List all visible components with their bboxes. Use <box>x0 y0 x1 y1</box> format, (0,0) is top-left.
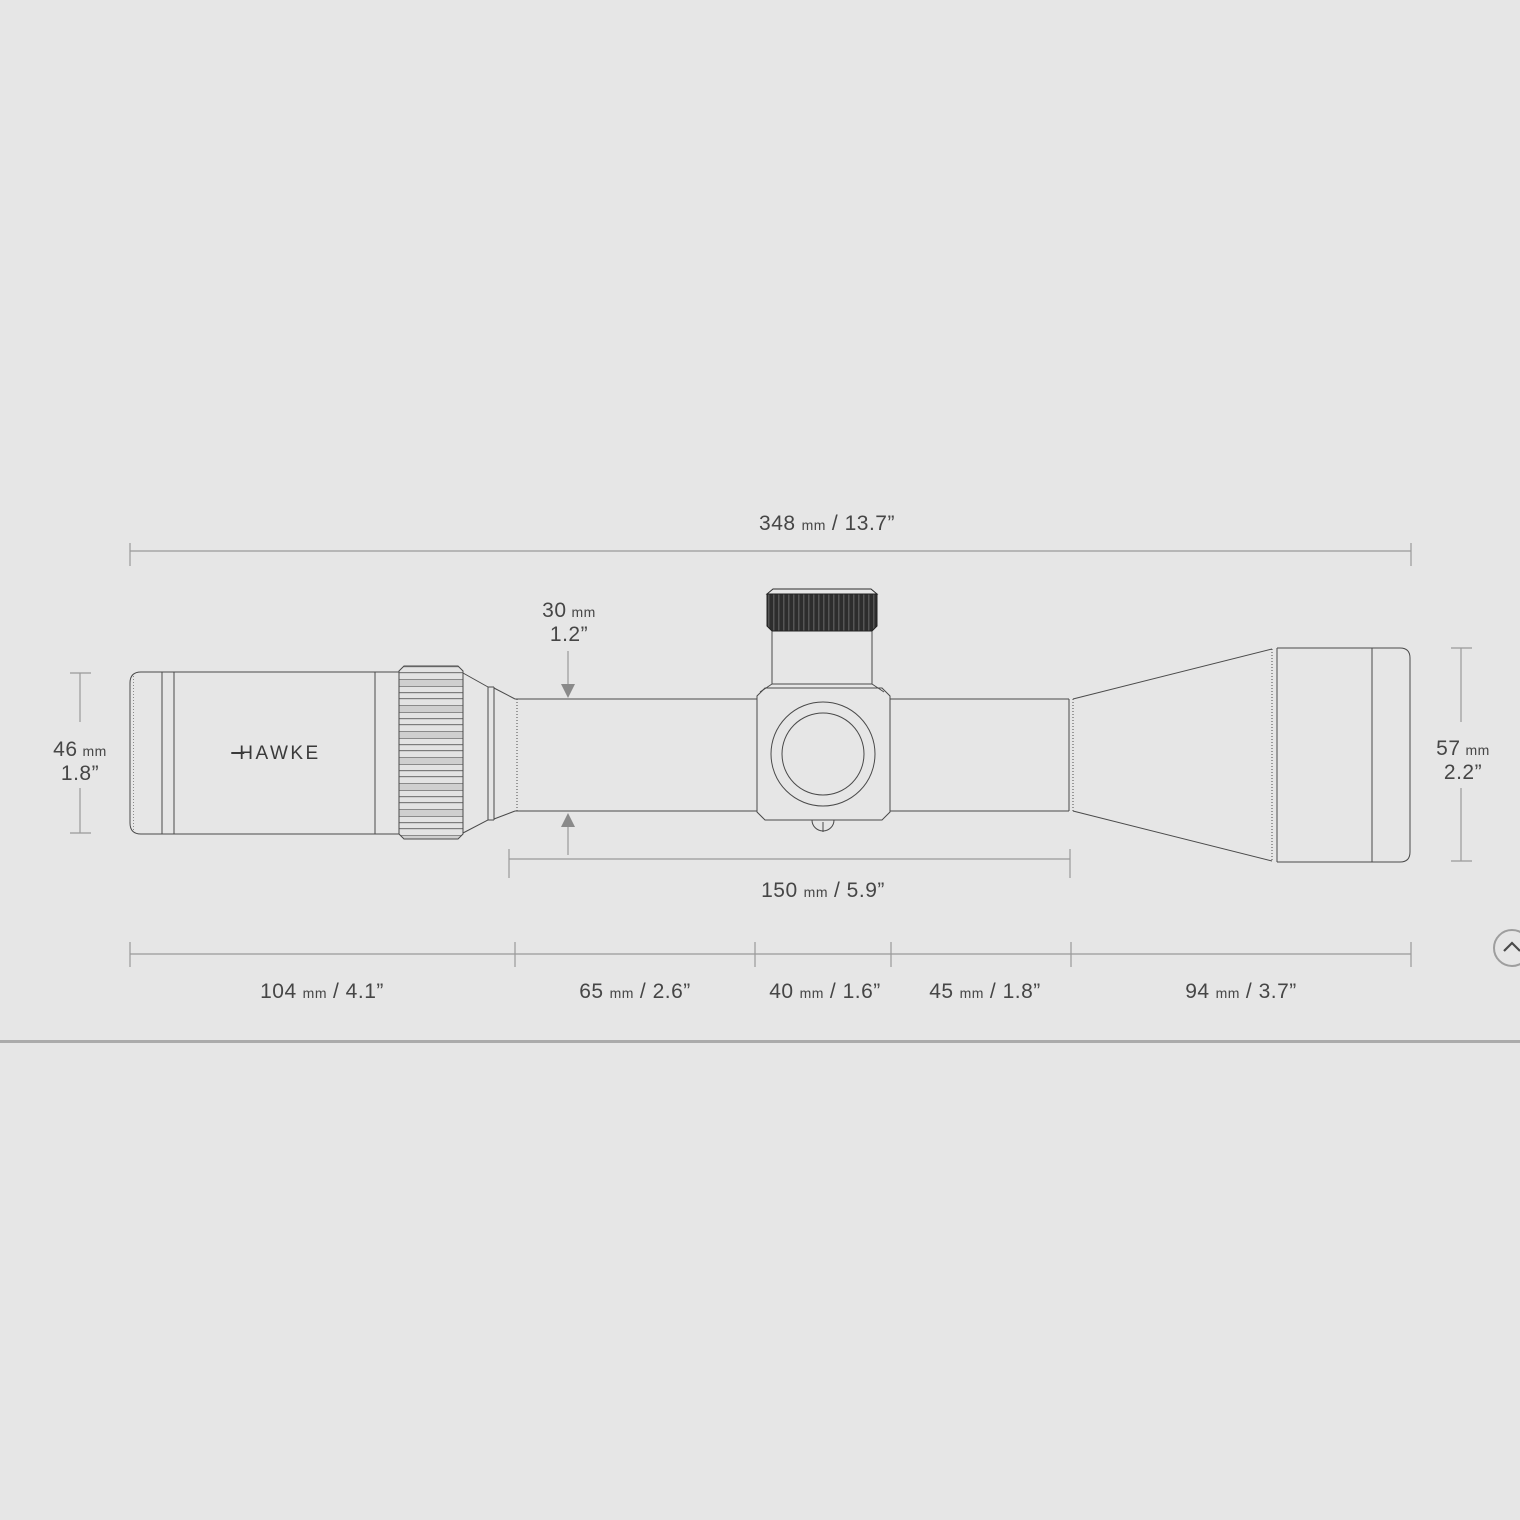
section-length-label-45: 45 mm / 1.8” <box>929 980 1041 1005</box>
mounting-length-label: 150 mm / 5.9” <box>761 879 885 904</box>
section-length-label-65: 65 mm / 2.6” <box>579 980 691 1005</box>
logo-text: HAWKE <box>239 743 320 764</box>
overall-length-label: 348 mm / 13.7” <box>759 512 895 537</box>
section-length-label-104: 104 mm / 4.1” <box>260 980 384 1005</box>
tube-transition <box>463 673 515 833</box>
eyepiece-diameter-label: 46 mm 1.8” <box>53 739 107 785</box>
mounting-length-dimension-line <box>509 849 1070 878</box>
section-divider <box>0 1040 1520 1043</box>
section-length-label-40: 40 mm / 1.6” <box>769 980 881 1005</box>
scope-line-drawing <box>0 0 1520 1520</box>
zoom-ring <box>399 666 463 839</box>
turret-cap-top <box>767 589 877 594</box>
tube-diameter-arrows <box>561 651 575 855</box>
main-tube <box>515 699 1073 811</box>
elevation-turret <box>760 589 884 692</box>
turret-saddle <box>757 688 890 832</box>
scroll-to-top-button[interactable] <box>1493 929 1520 967</box>
logo-crossbar <box>231 752 244 754</box>
scope-body <box>130 589 1410 862</box>
turret-cap <box>767 594 877 631</box>
chevron-up-icon <box>1495 931 1520 965</box>
scope-dimension-diagram: HAWKE 348 mm / 13.7” 30 mm 1.2” 46 mm 1.… <box>0 0 1520 1520</box>
hawke-logo: HAWKE <box>239 743 320 765</box>
tube-diameter-label: 30 mm 1.2” <box>542 600 596 646</box>
side-focus-ring-inner <box>782 713 864 795</box>
objective-bell <box>1073 648 1410 862</box>
overall-length-dimension-line <box>130 543 1411 566</box>
side-focus-ring-outer <box>771 702 875 806</box>
section-scale-line <box>130 942 1411 967</box>
section-length-label-94: 94 mm / 3.7” <box>1185 980 1297 1005</box>
objective-diameter-label: 57 mm 2.2” <box>1436 738 1490 784</box>
